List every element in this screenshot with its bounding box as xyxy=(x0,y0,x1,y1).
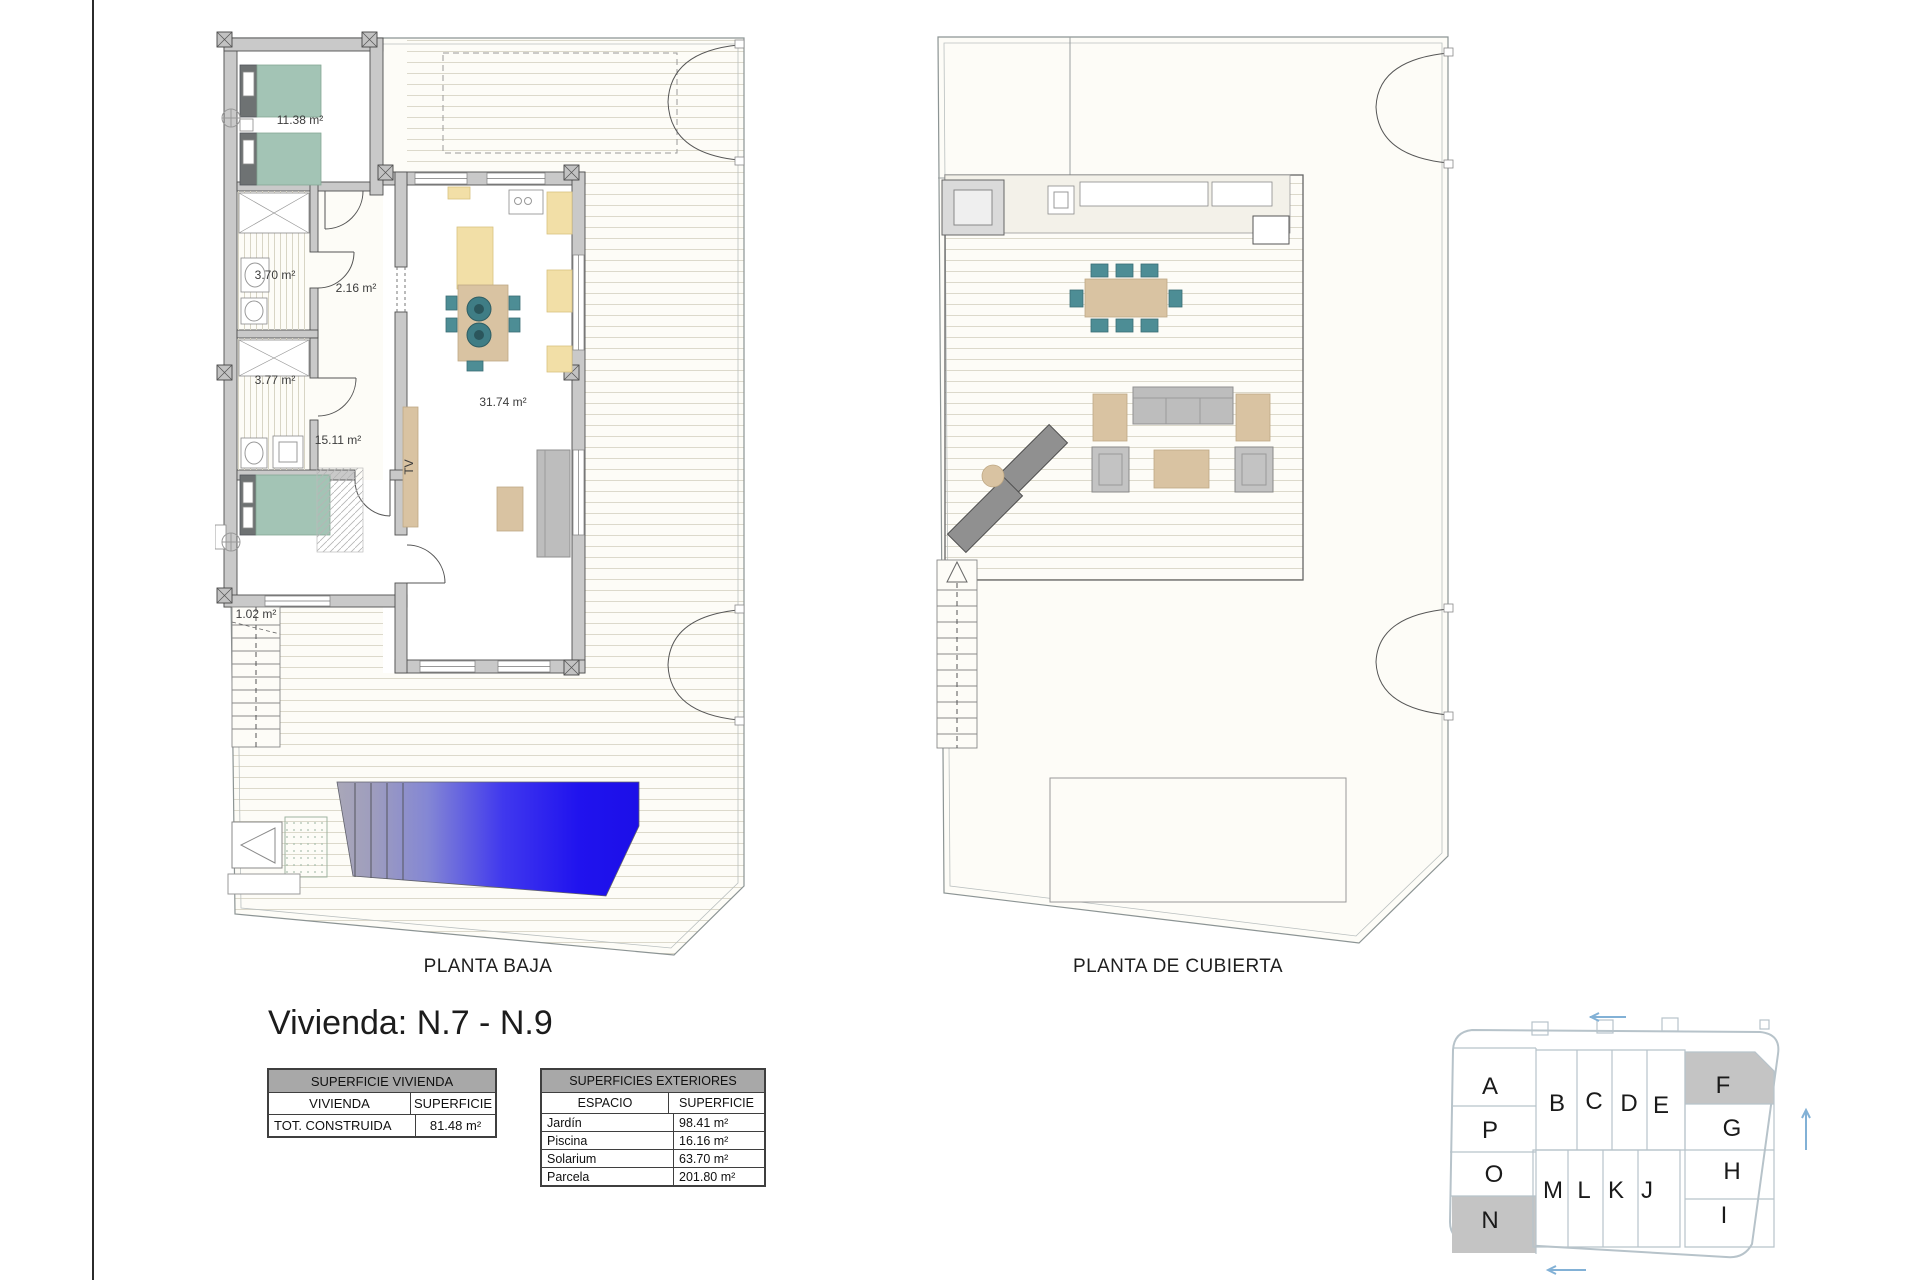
ground-floor-caption: PLANTA BAJA xyxy=(368,956,608,978)
lot-P: P xyxy=(1482,1117,1498,1144)
lot-E: E xyxy=(1653,1092,1669,1119)
row-label: Solarium xyxy=(542,1150,674,1167)
lot-I: I xyxy=(1721,1202,1728,1229)
lot-K: K xyxy=(1608,1177,1624,1204)
lot-N: N xyxy=(1481,1207,1498,1234)
bath1-area-label: 3.70 m² xyxy=(255,268,296,282)
table-exteriores-columns: ESPACIO SUPERFICIE xyxy=(542,1093,764,1114)
coffee-table xyxy=(1154,450,1209,488)
sofa-3seat xyxy=(1133,387,1233,424)
row-value: 81.48 m² xyxy=(416,1115,495,1136)
bathroom1-fixtures xyxy=(238,191,310,330)
bath2-area-label: 3.77 m² xyxy=(255,373,296,387)
lot-M: M xyxy=(1543,1177,1563,1204)
lot-F: F xyxy=(1716,1072,1731,1099)
stairs-area-label: 1.02 m² xyxy=(236,607,277,621)
garden-stairs xyxy=(232,607,280,747)
lot-B: B xyxy=(1549,1090,1565,1117)
lot-O: O xyxy=(1485,1161,1504,1188)
arrow-right xyxy=(1802,1110,1810,1150)
bedroom2-area-label: 15.11 m² xyxy=(315,433,361,447)
row-label: Piscina xyxy=(542,1132,674,1149)
table-row: TOT. CONSTRUIDA 81.48 m² xyxy=(269,1115,495,1136)
hall-area-label: 2.16 m² xyxy=(336,281,377,295)
sofa xyxy=(537,450,570,557)
bathroom2-fixtures xyxy=(238,338,310,470)
site-key-plan: A P O N B C D E F G H I M L K J xyxy=(1440,1012,1840,1280)
tv-label: TV xyxy=(402,459,416,474)
row-label: Jardín xyxy=(542,1114,674,1131)
sideboard xyxy=(497,487,523,531)
table-superficies-exteriores: SUPERFICIES EXTERIORES ESPACIO SUPERFICI… xyxy=(540,1068,766,1187)
lot-C: C xyxy=(1585,1088,1602,1115)
lot-G: G xyxy=(1723,1115,1742,1142)
lot-L: L xyxy=(1577,1177,1590,1204)
lot-H: H xyxy=(1723,1158,1740,1185)
col-superficie: SUPERFICIE xyxy=(411,1093,495,1114)
col-superficie: SUPERFICIE xyxy=(669,1093,764,1113)
site-arrows xyxy=(1548,1013,1810,1274)
row-label: Parcela xyxy=(542,1168,674,1185)
roof-plan-drawing xyxy=(930,30,1470,960)
lot-J: J xyxy=(1641,1177,1653,1204)
ground-floor-plan-drawing: TV xyxy=(215,30,855,960)
lower-roof xyxy=(1050,778,1346,902)
armchair-left xyxy=(1093,394,1127,441)
table-row: Solarium 63.70 m² xyxy=(542,1150,764,1168)
dining-table xyxy=(1085,279,1167,317)
table-superficie-vivienda: SUPERFICIE VIVIENDA VIVIENDA SUPERFICIE … xyxy=(267,1068,497,1138)
row-label: TOT. CONSTRUIDA xyxy=(269,1115,416,1136)
plan-sheet: TV xyxy=(0,0,1920,1280)
col-espacio: ESPACIO xyxy=(542,1093,669,1113)
roof-plan-caption: PLANTA DE CUBIERTA xyxy=(1028,956,1328,978)
living-area-label: 31.74 m² xyxy=(479,395,526,409)
table-row: Piscina 16.16 m² xyxy=(542,1132,764,1150)
row-value: 63.70 m² xyxy=(674,1150,764,1167)
armchair-right xyxy=(1236,394,1270,441)
row-value: 16.16 m² xyxy=(674,1132,764,1149)
table-row: Jardín 98.41 m² xyxy=(542,1114,764,1132)
bedroom1-area-label: 11.38 m² xyxy=(277,113,323,127)
side-table xyxy=(982,465,1004,487)
table-row: Parcela 201.80 m² xyxy=(542,1168,764,1185)
outdoor-sink xyxy=(1048,186,1074,214)
page-edge-line xyxy=(92,0,94,1280)
table-vivienda-columns: VIVIENDA SUPERFICIE xyxy=(269,1093,495,1115)
table-exteriores-header: SUPERFICIES EXTERIORES xyxy=(542,1070,764,1093)
arrow-bottom xyxy=(1548,1266,1586,1274)
counter-end-unit xyxy=(1253,216,1289,244)
page-title: Vivienda: N.7 - N.9 xyxy=(268,1004,553,1043)
row-value: 201.80 m² xyxy=(674,1168,764,1185)
table-vivienda-header: SUPERFICIE VIVIENDA xyxy=(269,1070,495,1093)
col-vivienda: VIVIENDA xyxy=(269,1093,411,1114)
roof-stairs xyxy=(937,560,977,748)
planter xyxy=(285,817,327,877)
row-value: 98.41 m² xyxy=(674,1114,764,1131)
lot-D: D xyxy=(1620,1090,1637,1117)
lot-A: A xyxy=(1482,1073,1498,1100)
